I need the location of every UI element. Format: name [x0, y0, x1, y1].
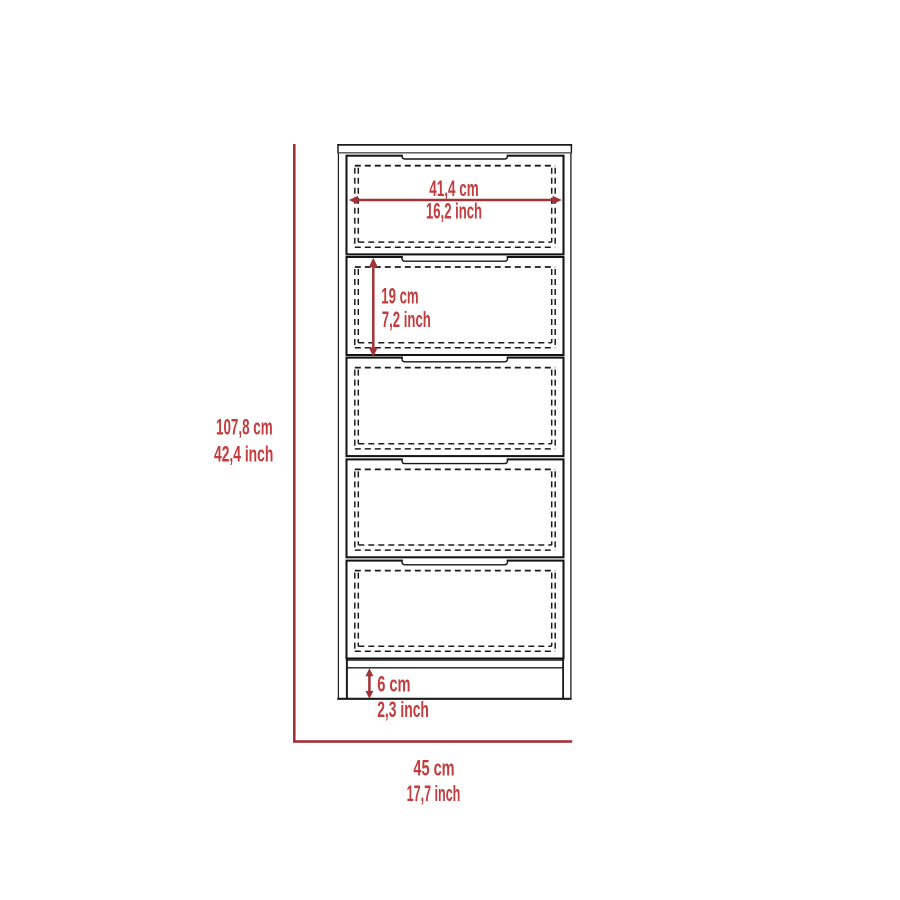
svg-text:16,2 inch: 16,2 inch	[426, 199, 482, 224]
svg-text:42,4 inch: 42,4 inch	[214, 441, 273, 466]
svg-text:45 cm: 45 cm	[413, 755, 454, 780]
svg-text:6 cm: 6 cm	[377, 672, 410, 697]
svg-text:19 cm: 19 cm	[381, 284, 418, 309]
svg-text:17,7 inch: 17,7 inch	[407, 781, 461, 806]
svg-text:107,8 cm: 107,8 cm	[216, 415, 273, 440]
svg-text:7,2 inch: 7,2 inch	[382, 307, 431, 332]
svg-text:41,4 cm: 41,4 cm	[429, 176, 478, 201]
svg-text:2,3 inch: 2,3 inch	[377, 697, 429, 722]
